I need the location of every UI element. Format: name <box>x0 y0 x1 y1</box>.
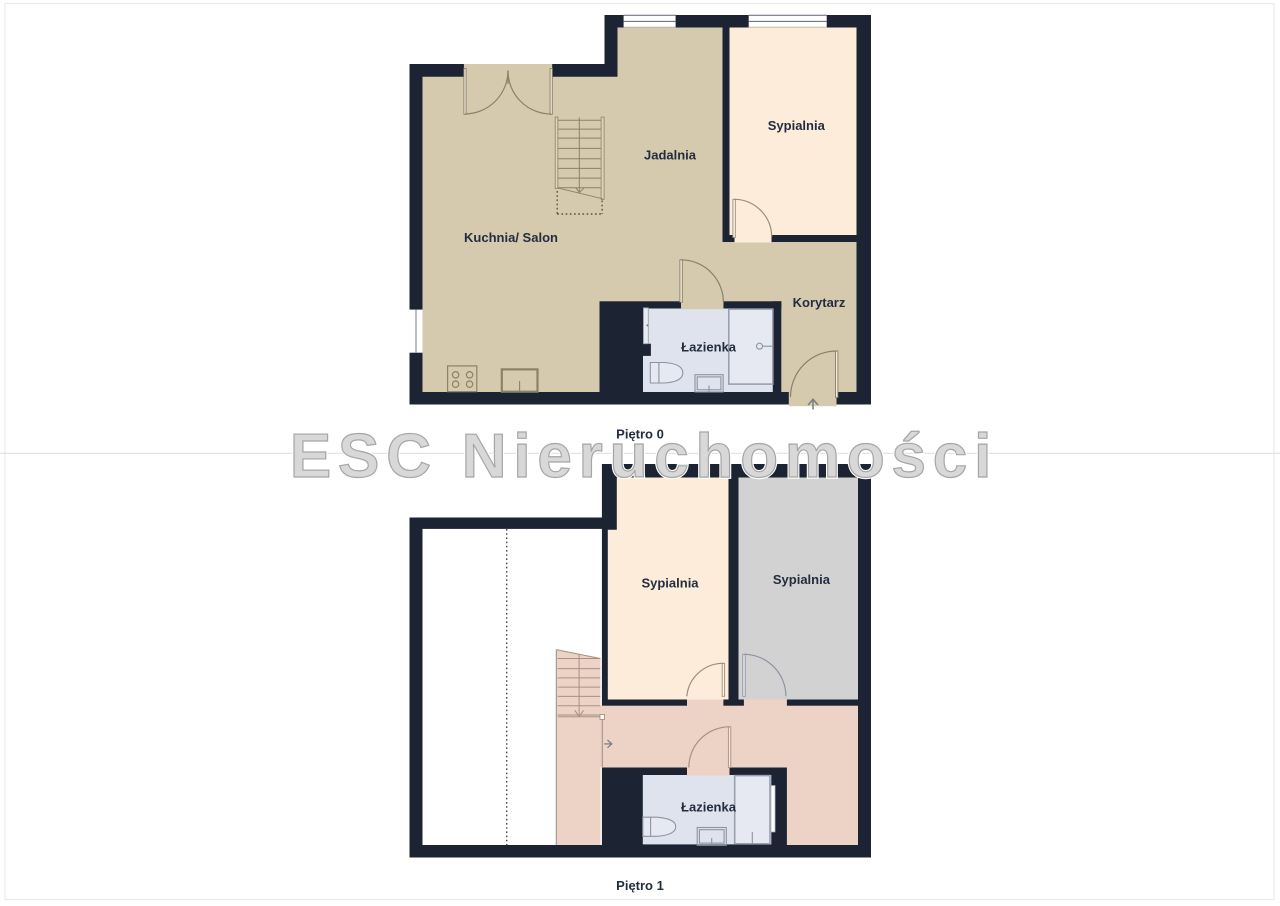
svg-text:Łazienka: Łazienka <box>681 340 737 355</box>
svg-text:Jadalnia: Jadalnia <box>644 148 697 163</box>
svg-text:Sypialnia: Sypialnia <box>768 118 826 133</box>
svg-text:Piętro 1: Piętro 1 <box>616 878 664 893</box>
svg-text:Piętro 0: Piętro 0 <box>616 426 664 441</box>
svg-text:Sypialnia: Sypialnia <box>641 576 699 591</box>
svg-text:Sypialnia: Sypialnia <box>773 572 831 587</box>
svg-text:Korytarz: Korytarz <box>793 295 846 310</box>
svg-text:Kuchnia/ Salon: Kuchnia/ Salon <box>464 230 558 245</box>
svg-text:Łazienka: Łazienka <box>681 799 737 814</box>
